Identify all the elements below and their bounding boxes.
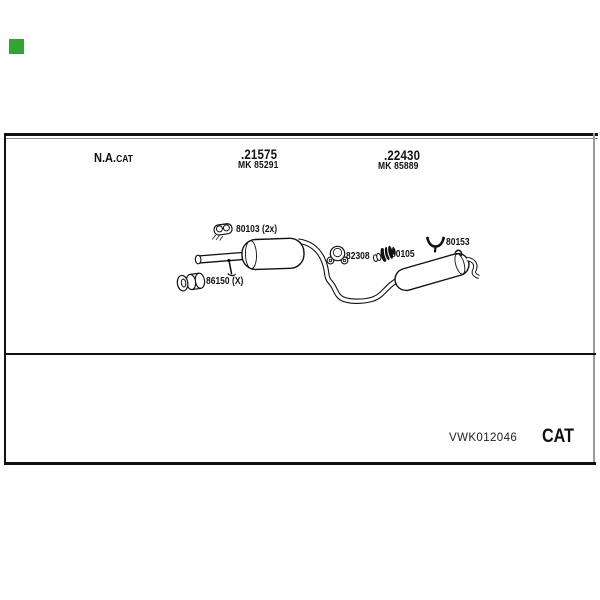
frame-left-border [4, 133, 6, 464]
label-hanger: 80153 [446, 238, 470, 248]
middle-muffler [195, 238, 305, 277]
brand-label: CAT [542, 427, 574, 446]
na-cat-label: N.A.CAT [94, 150, 133, 166]
label-mount: 86150 (X) [206, 277, 243, 287]
na-sub-text: CAT [116, 154, 133, 165]
hanger-hook-icon [426, 237, 445, 252]
frame-top-line-2 [4, 138, 598, 139]
frame-bottom-line [4, 462, 596, 465]
exhaust-diagram [170, 215, 490, 310]
hanger-pin [227, 259, 236, 276]
green-marker [9, 39, 24, 54]
frame-mid-divider [4, 353, 596, 355]
frame-top-line [4, 133, 598, 136]
clamp-icon [210, 223, 233, 241]
label-gasket: 82308 [346, 252, 370, 262]
gasket-icon [327, 246, 348, 264]
frame-right-border [593, 133, 595, 464]
reference-code: VWK012046 [449, 433, 517, 445]
label-clamp: 80103 (2x) [236, 225, 277, 235]
part-code-2: MK 85889 [378, 162, 419, 172]
na-main-text: N.A. [94, 150, 116, 165]
label-flex: 80105 [391, 250, 415, 260]
rubber-mount-icon [176, 272, 205, 291]
part-code-1: MK 85291 [238, 161, 279, 171]
